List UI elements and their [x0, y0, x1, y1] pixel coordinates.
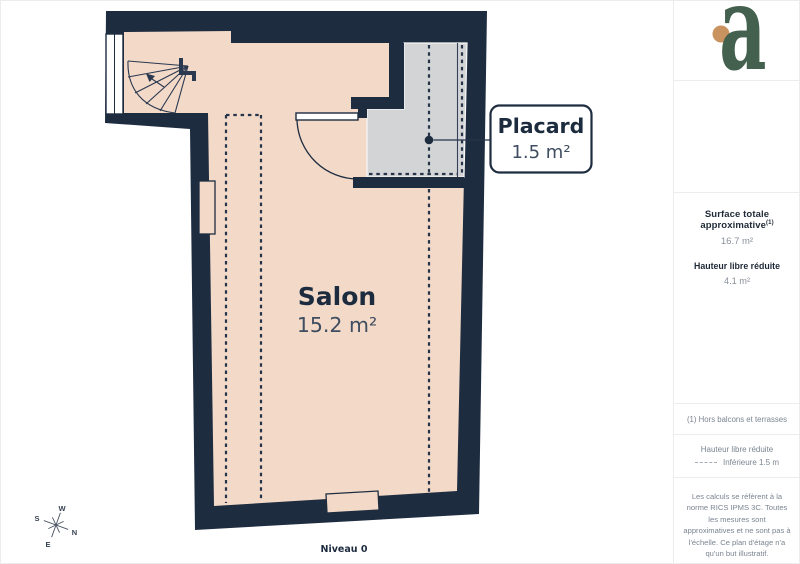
brand-logo: a: [674, 1, 800, 81]
compass-rose: N E S W: [34, 504, 77, 549]
compass-w: W: [58, 504, 66, 513]
height-title: Hauteur libre réduite: [674, 261, 800, 271]
sidebar-spacer: [674, 81, 800, 193]
surface-footnote-marker: (1): [766, 220, 774, 226]
wall-stub-hinge: [358, 109, 367, 118]
legend-item: Inférieure 1.5 m: [723, 458, 779, 467]
compass-e: E: [45, 540, 50, 549]
footnote-text: (1) Hors balcons et terrasses: [687, 415, 787, 424]
leader-dot: [425, 136, 434, 145]
floor-plan: Placard 1.5 m² Salon 15.2 m² Niveau 0 N …: [1, 1, 673, 564]
legend-section: Hauteur libre réduite Inférieure 1.5 m: [674, 435, 800, 478]
left-wall-niche: [199, 181, 215, 234]
level-label: Niveau 0: [321, 544, 368, 555]
window: [106, 34, 123, 114]
salon-area: 15.2 m²: [297, 313, 377, 337]
compass-n: N: [72, 528, 77, 537]
surface-section: Surface totale approximative(1) 16.7 m² …: [674, 193, 800, 404]
wall-below-placard: [353, 177, 464, 188]
compass-s: S: [34, 514, 39, 523]
height-value: 4.1 m²: [674, 276, 800, 286]
disclaimer-section: Les calculs se réfèrent à la norme RICS …: [674, 478, 800, 562]
placard-area: 1.5 m²: [511, 142, 570, 163]
footnote-section: (1) Hors balcons et terrasses: [674, 404, 800, 435]
salon-name: Salon: [298, 282, 376, 311]
surface-value: 16.7 m²: [674, 236, 800, 247]
floorplan-page: Placard 1.5 m² Salon 15.2 m² Niveau 0 N …: [0, 0, 800, 564]
door-leaf: [296, 113, 358, 120]
legend-title: Hauteur libre réduite: [701, 445, 773, 454]
placard-name: Placard: [498, 114, 585, 138]
surface-title: Surface totale approximative(1): [674, 209, 800, 231]
logo-letter-icon: a: [719, 1, 766, 81]
info-sidebar: a Surface totale approximative(1) 16.7 m…: [673, 1, 800, 563]
dashed-line-icon: [695, 462, 717, 463]
bottom-wall-niche: [326, 491, 379, 513]
disclaimer-text: Les calculs se réfèrent à la norme RICS …: [682, 491, 792, 559]
